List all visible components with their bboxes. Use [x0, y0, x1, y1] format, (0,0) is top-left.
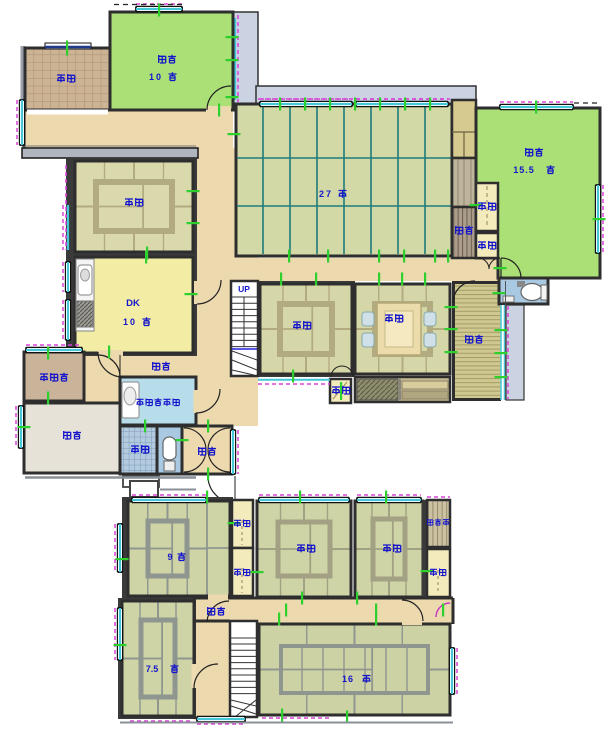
svg-text:9: 9 — [167, 552, 172, 562]
svg-text:DK: DK — [126, 298, 140, 309]
svg-text:10: 10 — [149, 72, 163, 82]
svg-text:10: 10 — [123, 317, 137, 327]
svg-text:27: 27 — [319, 189, 333, 199]
svg-text:15.5: 15.5 — [513, 165, 535, 175]
svg-text:7.5: 7.5 — [146, 664, 159, 674]
svg-text:16: 16 — [342, 674, 354, 684]
svg-text:UP: UP — [238, 284, 250, 294]
